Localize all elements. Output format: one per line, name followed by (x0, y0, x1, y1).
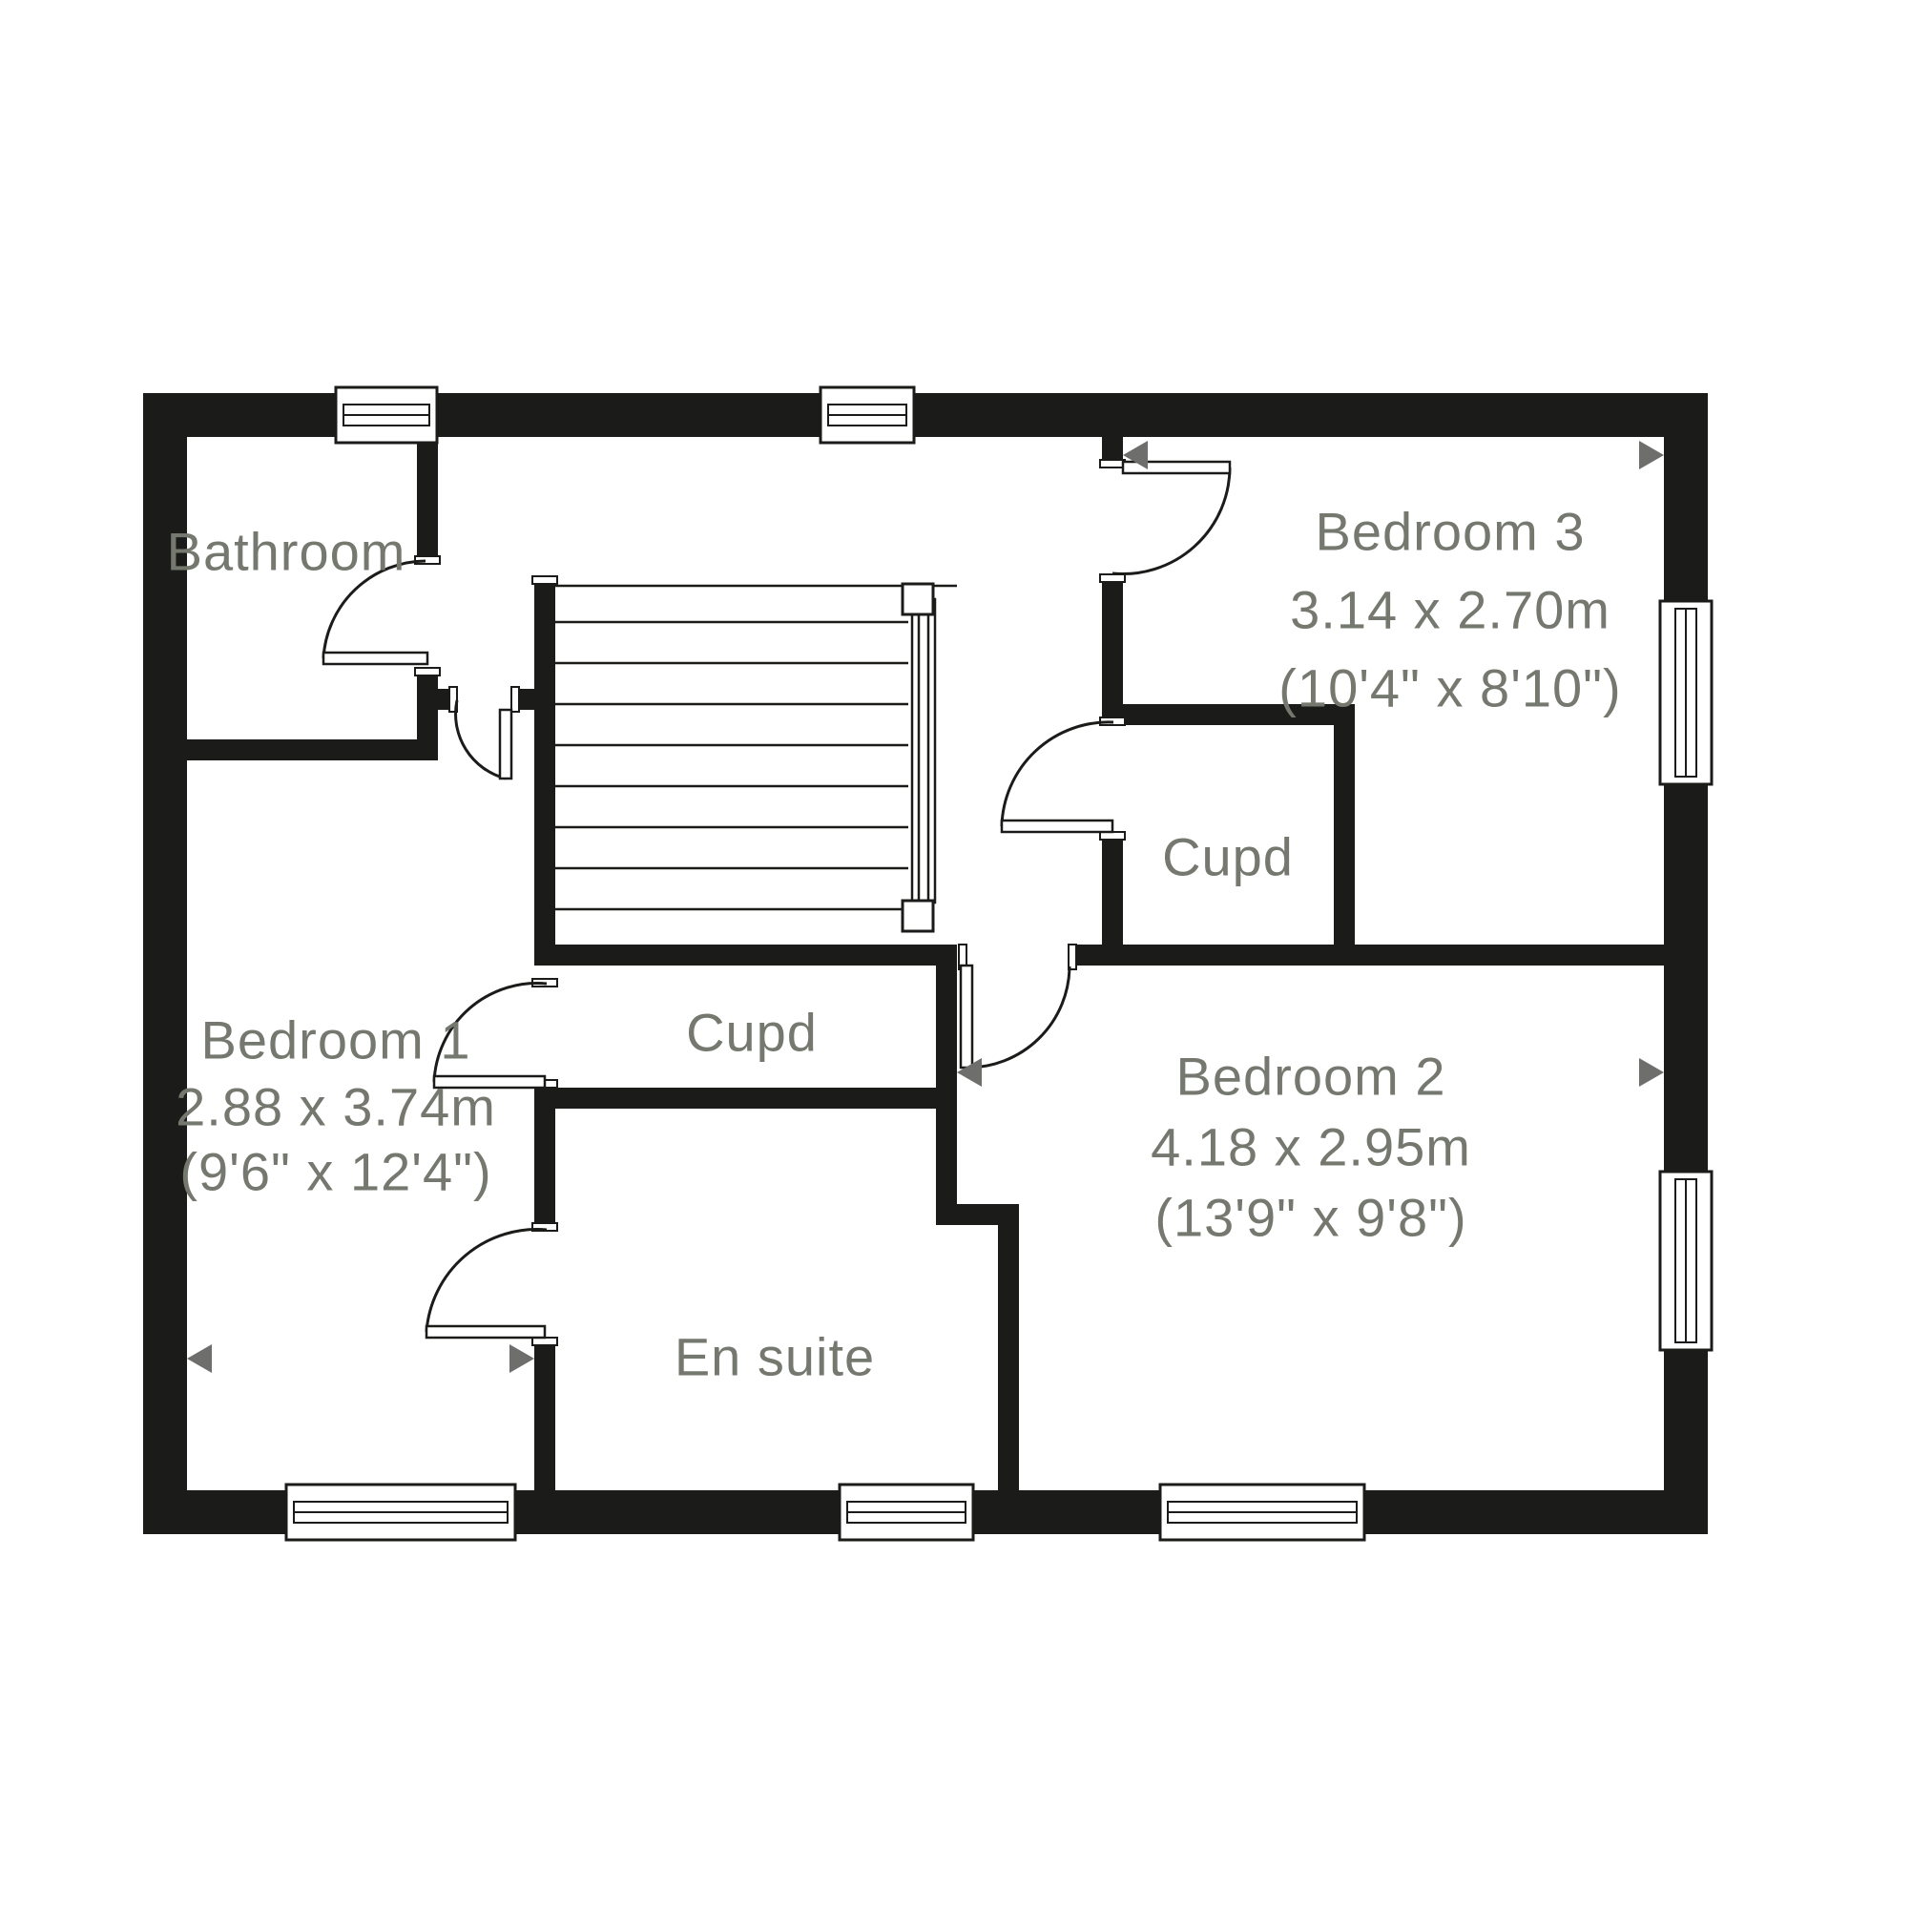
cap-bed3-door-bottom (1100, 574, 1125, 582)
landing-door-leaf (500, 710, 511, 779)
room-label-bedroom-2-line3: (13'9" x 9'8") (1154, 1188, 1466, 1248)
cap-hall-door-east (511, 687, 519, 712)
window-top-bathroom (336, 387, 437, 443)
wall-bathroom-bottom (143, 739, 438, 760)
bathroom-door-leaf (323, 653, 427, 664)
room-label-en-suite: En suite (675, 1327, 875, 1387)
floor-plan-page: BathroomBedroom 12.88 x 3.74m(9'6" x 12'… (0, 0, 1932, 1932)
wall-ensuite-right (998, 1225, 1019, 1490)
window-bottom-ensuite (840, 1485, 973, 1540)
bedroom-2-door-leaf (961, 966, 972, 1068)
wall-landing-bottom-west (534, 945, 957, 966)
wall-bed1-ensuite-divider-b (534, 1338, 555, 1490)
wall-bed3-left-lower (1102, 832, 1123, 945)
wall-cupboard-lower-bottom (545, 1088, 957, 1109)
stair-handrail (928, 599, 935, 903)
wall-bed1-ensuite-divider-a (534, 1088, 555, 1231)
room-label-bedroom-2-line2: 4.18 x 2.95m (1151, 1117, 1471, 1177)
cupboard-upper-door-leaf (1002, 821, 1112, 832)
wall-stair-left (534, 584, 555, 945)
room-label-cupboard-lower: Cupd (686, 1003, 818, 1063)
wall-exterior-right (1664, 393, 1708, 1534)
room-label-bedroom-1-line2: 2.88 x 3.74m (176, 1077, 496, 1137)
window-bottom-bedroom1 (286, 1485, 515, 1540)
wall-ensuite-notch-horiz (936, 1204, 1019, 1225)
room-label-bedroom-1-line3: (9'6" x 12'4") (179, 1142, 491, 1202)
window-right-bedroom3 (1660, 601, 1712, 784)
window-right-bedroom2 (1660, 1172, 1712, 1350)
stair-newel-post (903, 584, 933, 614)
cap-bed2-door-east (1069, 945, 1076, 969)
window-top-landing (821, 387, 914, 443)
cap-bed3-door-top (1100, 460, 1125, 467)
cap-stair-wall-top (532, 576, 557, 584)
window-bottom-bedroom2 (1160, 1485, 1364, 1540)
en-suite-door-leaf (426, 1326, 545, 1338)
wall-ensuite-notch-vert (936, 966, 957, 1225)
stair-newel-post (903, 901, 933, 931)
room-label-bedroom-3-line1: Bedroom 3 (1316, 502, 1586, 562)
wall-bed3-left-mid (1102, 574, 1123, 725)
floor-plan: BathroomBedroom 12.88 x 3.74m(9'6" x 12'… (0, 0, 1932, 1932)
stair-handrail (912, 599, 919, 903)
cap-bathroom-door-bottom (415, 668, 440, 675)
room-label-bedroom-2-line1: Bedroom 2 (1176, 1047, 1446, 1107)
room-label-bathroom: Bathroom (167, 522, 406, 582)
room-label-bedroom-1-line1: Bedroom 1 (201, 1010, 471, 1070)
room-label-cupboard-upper: Cupd (1162, 827, 1294, 887)
wall-landing-bottom-east (1069, 945, 1664, 966)
wall-bed2-bed3-divider (1334, 725, 1355, 945)
wall-bathroom-right-upper (417, 437, 438, 564)
room-label-bedroom-3-line3: (10'4" x 8'10") (1278, 658, 1621, 718)
room-label-bedroom-3-line2: 3.14 x 2.70m (1290, 580, 1610, 640)
